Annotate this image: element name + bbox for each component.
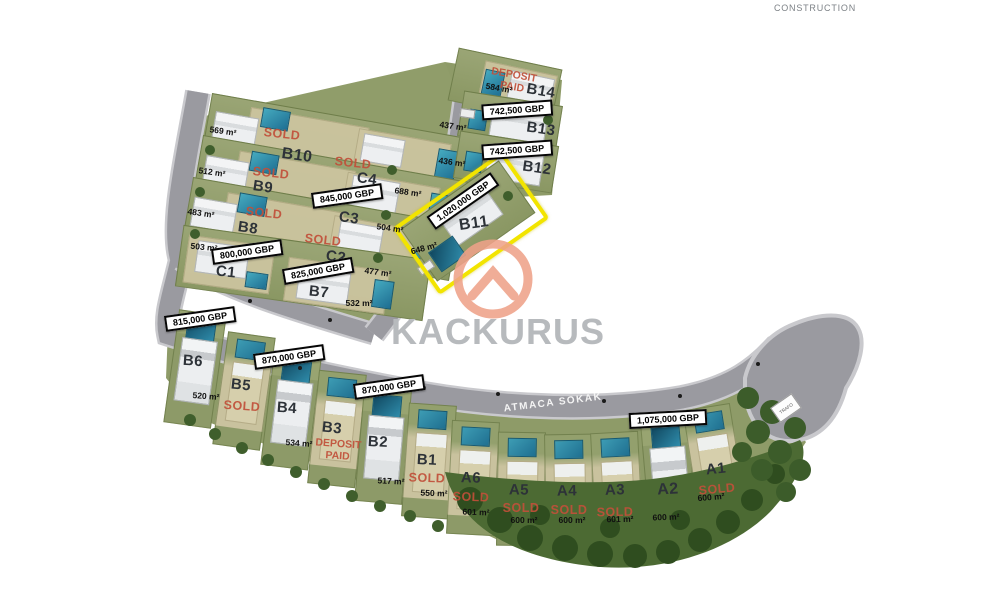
plot-a1-label: A1: [705, 459, 727, 478]
plot-a6-size: 601 m²: [462, 507, 489, 518]
kackurus-wordmark: KACKURUS: [391, 311, 605, 353]
plot-c1-label: C1: [215, 262, 237, 281]
plot-b2-size: 517 m²: [377, 475, 404, 486]
plot-c3-label: C3: [338, 208, 360, 228]
plot-b7-size: 532 m²: [346, 298, 373, 308]
plot-a5-status: SOLD: [503, 501, 540, 515]
plot-a6-label: A6: [461, 469, 482, 487]
plot-b5-label: B5: [230, 375, 252, 394]
plot-b6-label: B6: [182, 352, 203, 370]
plot-b6-size: 520 m²: [192, 390, 220, 402]
plot-b2-label: B2: [367, 433, 388, 451]
plot-a3-size: 601 m²: [606, 514, 633, 524]
plot-b5-status: SOLD: [223, 398, 261, 415]
villa-b7-pool: [371, 279, 395, 310]
car: [459, 108, 475, 119]
plot-b4-size: 534 m²: [285, 437, 313, 449]
plot-a6-status: SOLD: [452, 489, 489, 504]
plot-b3-status: DEPOSIT PAID: [309, 436, 367, 464]
plot-b7-label: B7: [308, 282, 330, 301]
plot-a5-size: 600 m²: [511, 515, 538, 525]
plot-b1-status: SOLD: [408, 470, 445, 485]
plot-a4-size: 600 m²: [559, 515, 586, 525]
plot-b8-label: B8: [237, 218, 259, 238]
villa-c1-pool: [244, 271, 268, 290]
plot-a2-label: A2: [657, 480, 679, 499]
site-plan: CONSTRUCTION ATMACA SOKAK TRAFO B14 B13 …: [0, 0, 1000, 600]
plot-a3-label: A3: [605, 481, 626, 499]
construction-label: CONSTRUCTION: [760, 3, 870, 13]
plot-a4-label: A4: [557, 482, 577, 499]
plot-a5-label: A5: [509, 481, 529, 498]
plot-b1-label: B1: [416, 451, 437, 469]
plot-b3-label: B3: [321, 418, 343, 437]
plot-b4-label: B4: [276, 399, 297, 417]
plot-b1-size: 550 m²: [420, 488, 447, 499]
plot-a2-size: 600 m²: [652, 512, 679, 523]
